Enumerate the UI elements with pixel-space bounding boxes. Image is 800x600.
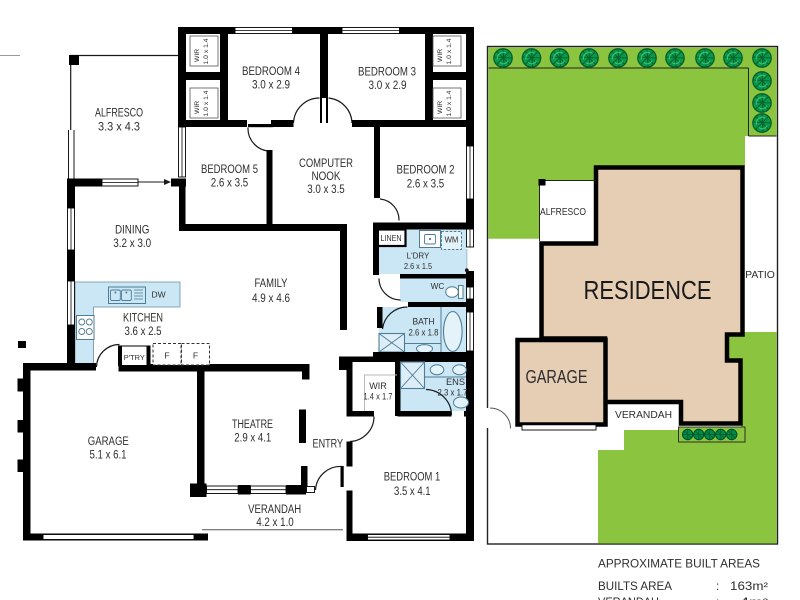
svg-text:WM: WM: [445, 236, 459, 245]
svg-text:ENS: ENS: [446, 377, 465, 387]
svg-text:3.6 x 2.5: 3.6 x 2.5: [125, 324, 162, 338]
svg-text:BEDROOM 1: BEDROOM 1: [384, 470, 441, 484]
svg-text:APPROXIMATE BUILT AREAS: APPROXIMATE BUILT AREAS: [598, 558, 760, 571]
svg-text:ALFRESCO: ALFRESCO: [95, 106, 143, 120]
svg-text:4.9 x 4.6: 4.9 x 4.6: [252, 291, 290, 305]
svg-text:PATIO: PATIO: [745, 270, 775, 281]
svg-text::: :: [716, 580, 719, 593]
svg-text:ENTRY: ENTRY: [313, 436, 344, 450]
svg-text:LINEN: LINEN: [381, 234, 402, 243]
svg-text:WIR: WIR: [437, 101, 444, 114]
svg-text:WIR: WIR: [369, 381, 387, 391]
svg-text:1.0 x 1.4: 1.0 x 1.4: [203, 90, 210, 116]
svg-text:RESIDENCE: RESIDENCE: [584, 277, 712, 305]
svg-text:2.6 x 1.5: 2.6 x 1.5: [404, 262, 433, 271]
svg-text:F: F: [164, 351, 169, 361]
svg-text:1.0 x 1.4: 1.0 x 1.4: [446, 90, 453, 116]
svg-text:VERANDAH: VERANDAH: [598, 596, 659, 600]
svg-text:L'DRY: L'DRY: [407, 252, 430, 261]
svg-text:VERANDAH: VERANDAH: [248, 502, 301, 516]
svg-text:WIR: WIR: [194, 49, 201, 62]
svg-text:3.0 x 2.9: 3.0 x 2.9: [369, 78, 407, 92]
svg-text:THEATRE: THEATRE: [232, 417, 273, 431]
svg-text:BEDROOM 4: BEDROOM 4: [242, 64, 300, 78]
svg-text:DW: DW: [152, 290, 166, 300]
svg-text:WIR: WIR: [194, 101, 201, 114]
svg-text:3.0 x 2.9: 3.0 x 2.9: [252, 78, 290, 92]
svg-text:F: F: [193, 351, 198, 361]
svg-text::: :: [716, 596, 719, 600]
svg-text:3.0 x 3.5: 3.0 x 3.5: [307, 182, 345, 196]
svg-text:2.3 x 1.7: 2.3 x 1.7: [438, 388, 468, 398]
svg-text:163m²: 163m²: [730, 580, 768, 593]
svg-text:4.2 x 1.0: 4.2 x 1.0: [256, 515, 294, 529]
svg-text:BUILTS AREA: BUILTS AREA: [598, 580, 672, 593]
svg-text:ALFRESCO: ALFRESCO: [540, 207, 586, 218]
svg-text:BEDROOM 3: BEDROOM 3: [358, 65, 416, 79]
svg-text:BEDROOM 5: BEDROOM 5: [201, 162, 258, 176]
svg-text:GARAGE: GARAGE: [88, 434, 129, 448]
svg-text:3.3 x 4.3: 3.3 x 4.3: [98, 120, 140, 134]
svg-text:3.5 x 4.1: 3.5 x 4.1: [394, 484, 431, 498]
svg-text:NOOK: NOOK: [312, 169, 342, 183]
svg-text:GARAGE: GARAGE: [526, 366, 588, 387]
svg-text:KITCHEN: KITCHEN: [123, 310, 163, 324]
svg-text:3.2 x 3.0: 3.2 x 3.0: [113, 236, 151, 250]
svg-text:4m²: 4m²: [740, 596, 768, 600]
svg-text:1.4 x 1.7: 1.4 x 1.7: [364, 392, 393, 402]
svg-text:COMPUTER: COMPUTER: [299, 156, 353, 170]
svg-text:2.9 x 4.1: 2.9 x 4.1: [234, 431, 271, 445]
svg-text:BEDROOM 2: BEDROOM 2: [397, 163, 455, 177]
svg-text:VERANDAH: VERANDAH: [615, 410, 672, 421]
svg-text:WIR: WIR: [437, 49, 444, 62]
svg-text:P'TRY: P'TRY: [124, 353, 145, 362]
svg-text:2.6 x 1.8: 2.6 x 1.8: [409, 328, 439, 338]
svg-text:1.0 x 1.4: 1.0 x 1.4: [446, 38, 453, 64]
svg-text:DINING: DINING: [115, 223, 150, 237]
svg-text:WC: WC: [431, 282, 445, 291]
svg-text:2.6 x 3.5: 2.6 x 3.5: [211, 176, 249, 190]
svg-text:2.6 x 3.5: 2.6 x 3.5: [407, 177, 445, 191]
svg-text:1.0 x 1.4: 1.0 x 1.4: [203, 38, 210, 64]
svg-text:5.1 x 6.1: 5.1 x 6.1: [90, 448, 127, 462]
svg-text:BATH: BATH: [413, 317, 435, 327]
svg-text:FAMILY: FAMILY: [255, 276, 288, 290]
